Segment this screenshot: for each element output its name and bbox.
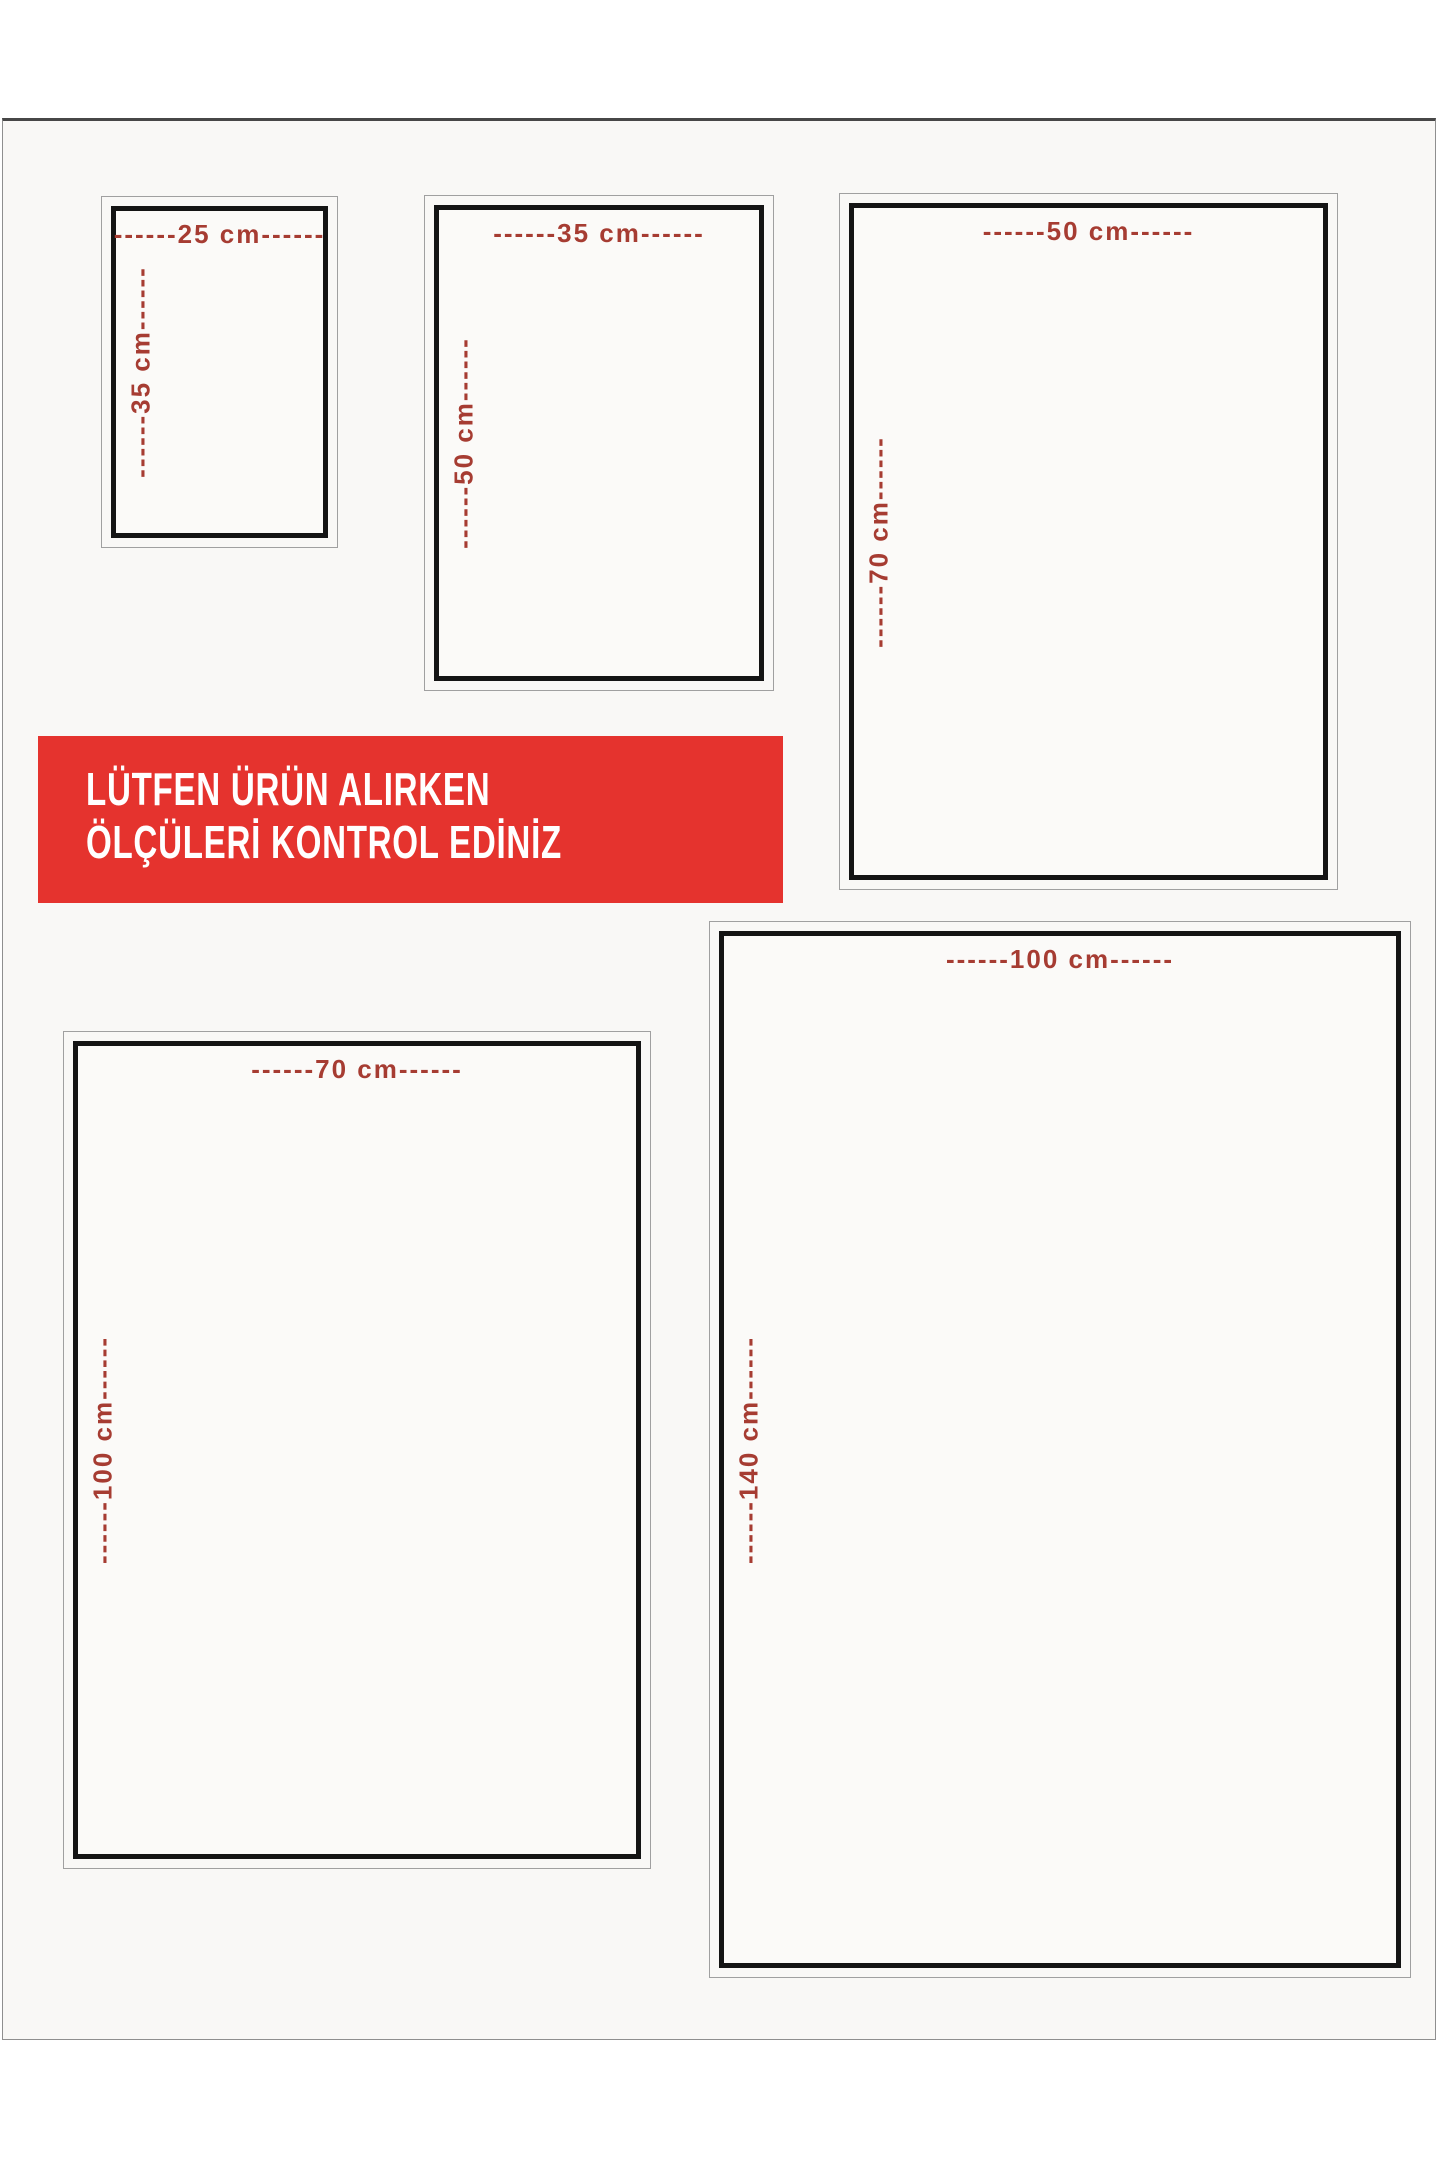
size-guide-canvas: ------25 cm------ ------35 cm------ ----… — [2, 118, 1436, 2040]
width-label-25cm: ------25 cm------ — [114, 219, 326, 250]
width-label-35cm: ------35 cm------ — [493, 218, 705, 249]
size-box-100x140: ------100 cm------ ------140 cm------ — [709, 921, 1411, 1978]
height-label-50cm: ------50 cm------ — [449, 337, 480, 549]
size-box-50x70: ------50 cm------ ------70 cm------ — [839, 193, 1338, 890]
size-box-50x70-border: ------50 cm------ ------70 cm------ — [849, 203, 1328, 880]
size-box-25x35: ------25 cm------ ------35 cm------ — [101, 196, 338, 548]
warning-line-2: ÖLÇÜLERİ KONTROL EDİNİZ — [86, 816, 588, 869]
width-label-70cm: ------70 cm------ — [251, 1054, 463, 1085]
width-label-100cm: ------100 cm------ — [946, 944, 1174, 975]
size-box-35x50: ------35 cm------ ------50 cm------ — [424, 195, 774, 691]
height-label-140cm: ------140 cm------ — [734, 1335, 765, 1563]
size-box-70x100-border: ------70 cm------ ------100 cm------ — [73, 1041, 641, 1859]
height-label-70cm: ------70 cm------ — [864, 436, 895, 648]
warning-line-1: LÜTFEN ÜRÜN ALIRKEN — [86, 763, 588, 816]
height-label-100cm: ------100 cm------ — [88, 1336, 119, 1564]
size-box-25x35-border: ------25 cm------ ------35 cm------ — [111, 206, 328, 538]
width-label-50cm: ------50 cm------ — [983, 216, 1195, 247]
height-label-35cm: ------35 cm------ — [126, 266, 157, 478]
size-box-100x140-border: ------100 cm------ ------140 cm------ — [719, 931, 1401, 1968]
size-box-35x50-border: ------35 cm------ ------50 cm------ — [434, 205, 764, 681]
size-box-70x100: ------70 cm------ ------100 cm------ — [63, 1031, 651, 1869]
size-guide-page: ------25 cm------ ------35 cm------ ----… — [0, 0, 1440, 2160]
measurement-warning-banner: LÜTFEN ÜRÜN ALIRKEN ÖLÇÜLERİ KONTROL EDİ… — [38, 736, 783, 903]
